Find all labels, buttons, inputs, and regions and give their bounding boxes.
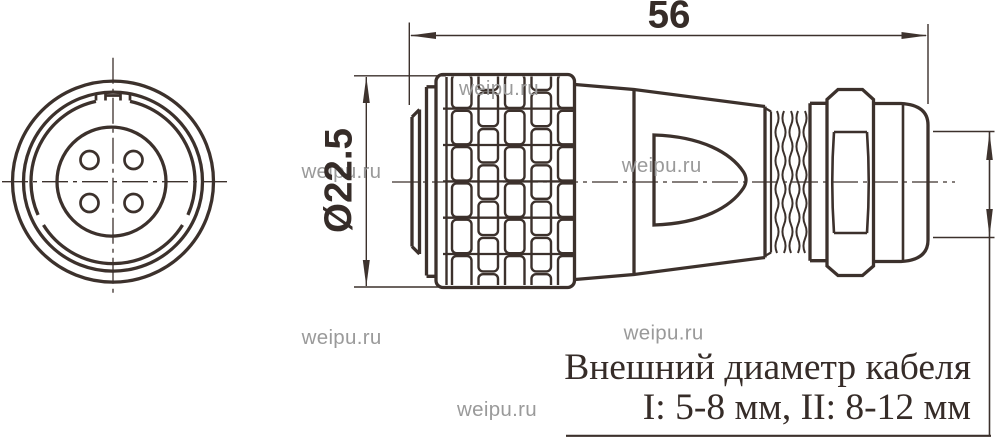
- svg-text:weipu.ru: weipu.ru: [301, 326, 382, 349]
- svg-text:weipu.ru: weipu.ru: [623, 322, 704, 345]
- svg-text:weipu.ru: weipu.ru: [621, 154, 702, 177]
- svg-text:weipu.ru: weipu.ru: [456, 398, 537, 421]
- svg-text:Внешний диаметр кабеля: Внешний диаметр кабеля: [564, 347, 971, 388]
- svg-text:I: 5-8 мм, II: 8-12 мм: I: 5-8 мм, II: 8-12 мм: [643, 387, 971, 428]
- svg-text:56: 56: [648, 0, 691, 37]
- svg-text:weipu.ru: weipu.ru: [458, 77, 539, 100]
- svg-text:Ø22.5: Ø22.5: [318, 128, 361, 233]
